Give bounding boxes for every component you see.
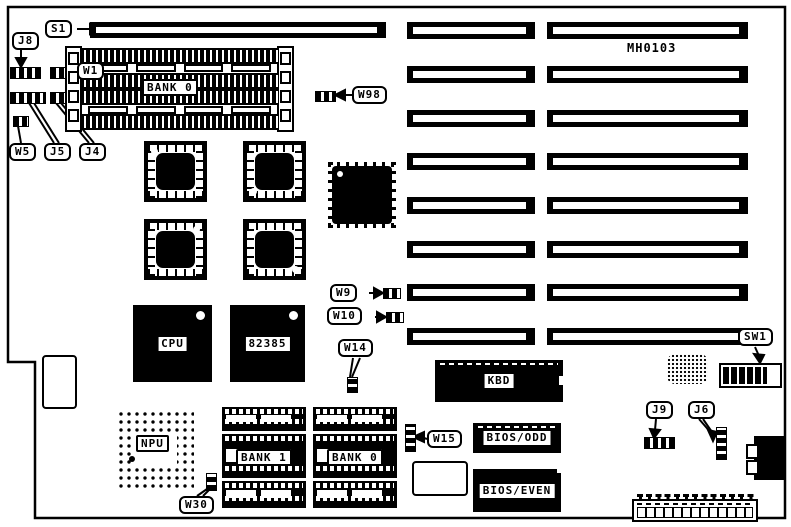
jumper-w9 bbox=[383, 288, 401, 299]
latch bbox=[280, 71, 291, 84]
plcc-die bbox=[255, 231, 294, 268]
pin1-dot bbox=[151, 148, 158, 155]
slot-opening bbox=[553, 246, 739, 253]
simm-latch-right bbox=[277, 46, 294, 132]
cpu-chip: CPU bbox=[133, 305, 212, 382]
board-id-text: MH0103 bbox=[627, 41, 676, 55]
oscillator bbox=[667, 354, 708, 384]
expansion-slot bbox=[547, 153, 748, 170]
npu-label: NPU bbox=[136, 435, 169, 452]
slot-opening bbox=[96, 27, 377, 33]
jumper-j4 bbox=[50, 92, 66, 104]
power-connector bbox=[632, 499, 758, 522]
power-contacts bbox=[637, 503, 753, 505]
slot-opening bbox=[413, 158, 526, 165]
callout-w9: W9 bbox=[330, 284, 357, 302]
ram-chip bbox=[136, 106, 176, 114]
chip-notch-dashes bbox=[478, 426, 556, 428]
slot-opening bbox=[553, 289, 739, 296]
expansion-slot bbox=[407, 110, 535, 127]
callout-s1: S1 bbox=[45, 20, 72, 38]
callout-w15: W15 bbox=[427, 430, 462, 448]
connector-tab bbox=[746, 444, 759, 459]
callout-j6: J6 bbox=[688, 401, 715, 419]
chip-notch bbox=[559, 376, 564, 385]
pin1-dot bbox=[337, 171, 343, 177]
slot-opening bbox=[413, 27, 526, 34]
expansion-slot bbox=[407, 22, 535, 39]
ram-chip bbox=[88, 106, 128, 114]
slot-opening bbox=[413, 289, 526, 296]
slot-opening bbox=[553, 27, 739, 34]
bios-even-chip: BIOS/EVEN bbox=[473, 469, 561, 512]
expansion-slot bbox=[407, 241, 535, 258]
slot-opening bbox=[413, 115, 526, 122]
slot-opening bbox=[413, 333, 526, 340]
simm-chips bbox=[80, 106, 279, 114]
dip-row bbox=[222, 407, 306, 431]
connector-tab bbox=[746, 460, 759, 475]
slot-opening bbox=[553, 202, 739, 209]
callout-j5: J5 bbox=[44, 143, 71, 161]
latch bbox=[280, 52, 291, 65]
jumper-w15 bbox=[405, 424, 416, 452]
chip-notch bbox=[557, 467, 562, 473]
plcc-die bbox=[156, 153, 195, 190]
kbd-chip: KBD bbox=[435, 360, 563, 402]
dip-row bbox=[313, 407, 397, 431]
expansion-slot bbox=[407, 284, 535, 301]
npu-socket: NPU bbox=[115, 408, 194, 488]
expansion-slot bbox=[547, 241, 748, 258]
motherboard-diagram: MH0103 BANK 0 CPU 82385 KBD BIOS/ bbox=[0, 0, 791, 527]
latch bbox=[280, 109, 291, 122]
slot-s1 bbox=[90, 22, 386, 38]
bios-odd-label: BIOS/ODD bbox=[484, 431, 551, 445]
expansion-slot bbox=[547, 328, 748, 345]
simm-chips bbox=[80, 64, 279, 72]
callout-j8: J8 bbox=[12, 32, 39, 50]
jumper-w10 bbox=[386, 312, 404, 323]
expansion-slot bbox=[547, 22, 748, 39]
expansion-slot bbox=[547, 197, 748, 214]
bank0-simm-label: BANK 0 bbox=[142, 79, 198, 96]
pin1-dot bbox=[196, 311, 205, 320]
jumper-w14 bbox=[347, 377, 358, 393]
power-pins bbox=[636, 494, 754, 501]
plcc-chip bbox=[144, 219, 207, 280]
expansion-slot bbox=[547, 110, 748, 127]
ram-chip bbox=[136, 64, 176, 72]
bank0-dip-label: BANK 0 bbox=[327, 449, 383, 466]
ram-chip bbox=[184, 106, 224, 114]
plcc-die bbox=[255, 153, 294, 190]
jumper-j8 bbox=[10, 67, 41, 79]
bank1-label: BANK 1 bbox=[236, 449, 292, 466]
slot-opening bbox=[413, 246, 526, 253]
callout-w98: W98 bbox=[352, 86, 387, 104]
expansion-slot bbox=[407, 153, 535, 170]
pin1-dot bbox=[193, 226, 200, 233]
pin1-dot bbox=[129, 456, 135, 462]
jumper-j9 bbox=[644, 437, 675, 449]
empty-socket bbox=[412, 461, 468, 496]
ram-chip bbox=[184, 64, 224, 72]
power-pin-holes bbox=[637, 507, 753, 518]
kbd-label: KBD bbox=[485, 374, 514, 388]
jumper-w5 bbox=[13, 116, 29, 127]
expansion-slot bbox=[547, 284, 748, 301]
cache-82385-label: 82385 bbox=[245, 337, 289, 351]
jumper-j5 bbox=[10, 92, 46, 104]
callout-j9: J9 bbox=[646, 401, 673, 419]
slot-opening bbox=[553, 158, 739, 165]
cpu-label: CPU bbox=[158, 337, 187, 351]
pin1-dot bbox=[292, 266, 299, 273]
pin1-dot bbox=[250, 188, 257, 195]
callout-j4: J4 bbox=[79, 143, 106, 161]
empty-socket bbox=[42, 355, 77, 409]
callout-w1: W1 bbox=[77, 62, 104, 80]
callout-w10: W10 bbox=[327, 307, 362, 325]
latch bbox=[68, 109, 79, 122]
slot-opening bbox=[553, 71, 739, 78]
latch bbox=[68, 52, 79, 65]
expansion-slot bbox=[407, 197, 535, 214]
simm-contacts bbox=[80, 114, 279, 130]
callout-w30: W30 bbox=[179, 496, 214, 514]
dip-switch-levers bbox=[723, 367, 767, 384]
jumper-j6 bbox=[716, 427, 727, 460]
callout-w5: W5 bbox=[9, 143, 36, 161]
slot-opening bbox=[553, 115, 739, 122]
simm-contacts bbox=[80, 48, 279, 64]
dip-switch-sw1 bbox=[719, 363, 782, 388]
ram-chip bbox=[231, 64, 271, 72]
callout-sw1: SW1 bbox=[738, 328, 773, 346]
jumper-w98 bbox=[315, 91, 336, 102]
ram-chip bbox=[231, 106, 271, 114]
pin1-dot bbox=[289, 311, 298, 320]
bios-even-label: BIOS/EVEN bbox=[480, 484, 555, 498]
dip-row bbox=[313, 481, 397, 508]
plcc-chip bbox=[243, 219, 306, 280]
expansion-slot bbox=[547, 66, 748, 83]
slot-opening bbox=[413, 71, 526, 78]
plcc-die bbox=[156, 231, 195, 268]
latch bbox=[68, 90, 79, 103]
slot-opening bbox=[553, 333, 739, 340]
dip-row bbox=[222, 481, 306, 508]
callout-w14: W14 bbox=[338, 339, 373, 357]
plcc-chip bbox=[243, 141, 306, 202]
expansion-slot bbox=[407, 66, 535, 83]
jumper-w30 bbox=[206, 473, 217, 491]
cache-82385-chip: 82385 bbox=[230, 305, 305, 382]
qfp-chip bbox=[328, 162, 396, 228]
latch bbox=[280, 90, 291, 103]
jumper-w1 bbox=[50, 67, 66, 79]
chip-notch-dashes bbox=[440, 363, 558, 365]
expansion-slot bbox=[407, 328, 535, 345]
slot-opening bbox=[413, 202, 526, 209]
bios-odd-chip: BIOS/ODD bbox=[473, 423, 561, 453]
plcc-chip bbox=[144, 141, 207, 202]
